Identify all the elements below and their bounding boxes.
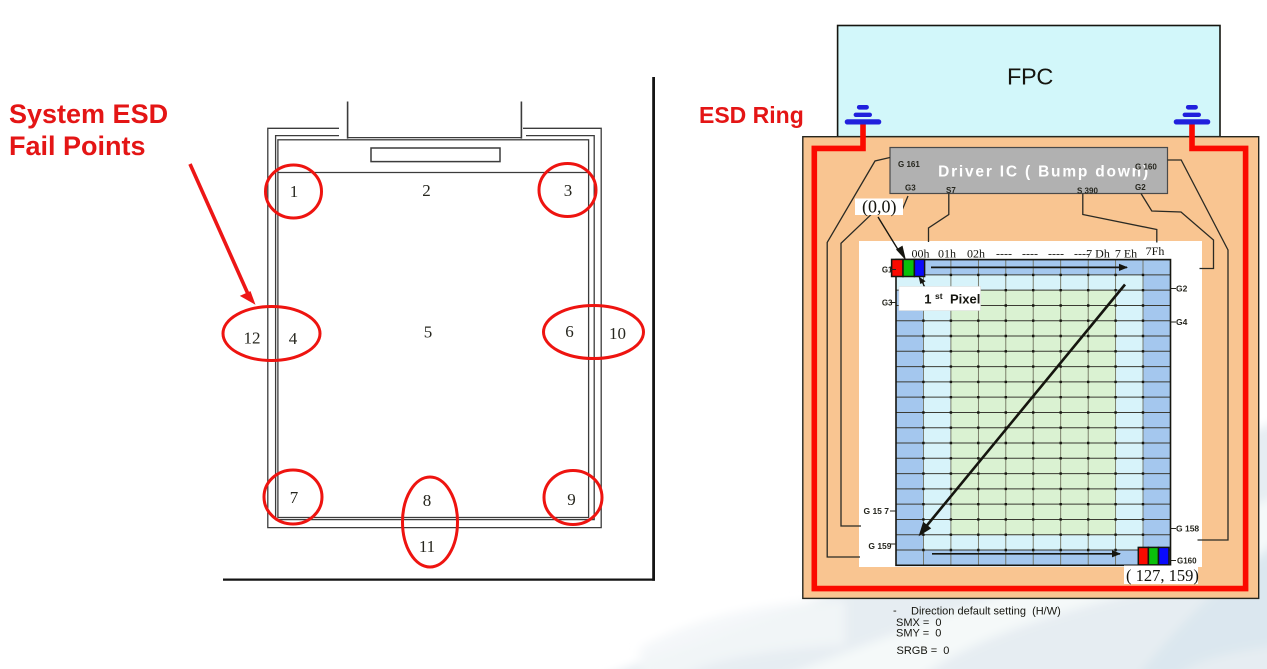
- svg-text:G2: G2: [1135, 183, 1146, 192]
- svg-text:8: 8: [423, 491, 432, 510]
- svg-text:G 158: G 158: [1176, 524, 1199, 534]
- svg-text:Direction default setting (H/: Direction default setting (H/W): [911, 606, 1061, 618]
- svg-text:01h: 01h: [938, 247, 956, 261]
- svg-text:SMY = 0: SMY = 0: [896, 628, 941, 640]
- svg-text:----: ----: [996, 247, 1012, 261]
- svg-text:st: st: [935, 291, 943, 301]
- svg-text:----: ----: [1022, 247, 1038, 261]
- svg-text:S7: S7: [946, 186, 956, 195]
- svg-text:7 Eh: 7 Eh: [1115, 247, 1137, 261]
- svg-text:10: 10: [609, 324, 626, 343]
- svg-text:7: 7: [290, 488, 299, 507]
- svg-text:Pixel: Pixel: [950, 292, 980, 307]
- svg-text:SRGB = 0: SRGB = 0: [897, 645, 950, 657]
- svg-text:----: ----: [1048, 247, 1064, 261]
- svg-text:1: 1: [924, 292, 931, 307]
- svg-text:9: 9: [567, 490, 576, 509]
- svg-text:G3: G3: [882, 299, 893, 308]
- svg-text:G 15 7: G 15 7: [863, 506, 889, 516]
- svg-text:5: 5: [424, 323, 433, 342]
- svg-text:00h: 00h: [912, 247, 930, 261]
- svg-text:Fail Points: Fail Points: [9, 131, 146, 161]
- svg-text:(0,0): (0,0): [862, 197, 897, 218]
- svg-text:G 159: G 159: [868, 541, 891, 551]
- svg-text:G 161: G 161: [898, 160, 920, 169]
- svg-text:G4: G4: [1176, 317, 1188, 327]
- svg-text:G 160: G 160: [1135, 163, 1157, 172]
- svg-text:11: 11: [419, 537, 435, 556]
- svg-text:02h: 02h: [967, 247, 985, 261]
- svg-text:ESD Ring: ESD Ring: [699, 102, 804, 128]
- svg-text:6: 6: [565, 322, 574, 341]
- svg-text:G2: G2: [1176, 284, 1188, 294]
- svg-text:-: -: [893, 605, 897, 617]
- svg-text:4: 4: [289, 329, 298, 348]
- svg-text:7 Dh: 7 Dh: [1086, 247, 1110, 261]
- svg-text:2: 2: [422, 181, 431, 200]
- svg-text:G1: G1: [882, 266, 893, 275]
- svg-text:G3: G3: [905, 184, 916, 193]
- svg-text:G160: G160: [1177, 557, 1197, 566]
- svg-text:7Fh: 7Fh: [1146, 244, 1165, 258]
- svg-text:Driver IC ( Bump down): Driver IC ( Bump down): [938, 164, 1150, 181]
- svg-text:( 127, 159): ( 127, 159): [1126, 566, 1199, 585]
- svg-text:FPC: FPC: [1007, 64, 1053, 90]
- svg-text:3: 3: [564, 181, 573, 200]
- svg-text:System ESD: System ESD: [9, 99, 168, 129]
- svg-text:S 390: S 390: [1077, 187, 1098, 196]
- svg-text:1: 1: [290, 182, 299, 201]
- svg-text:12: 12: [244, 329, 261, 348]
